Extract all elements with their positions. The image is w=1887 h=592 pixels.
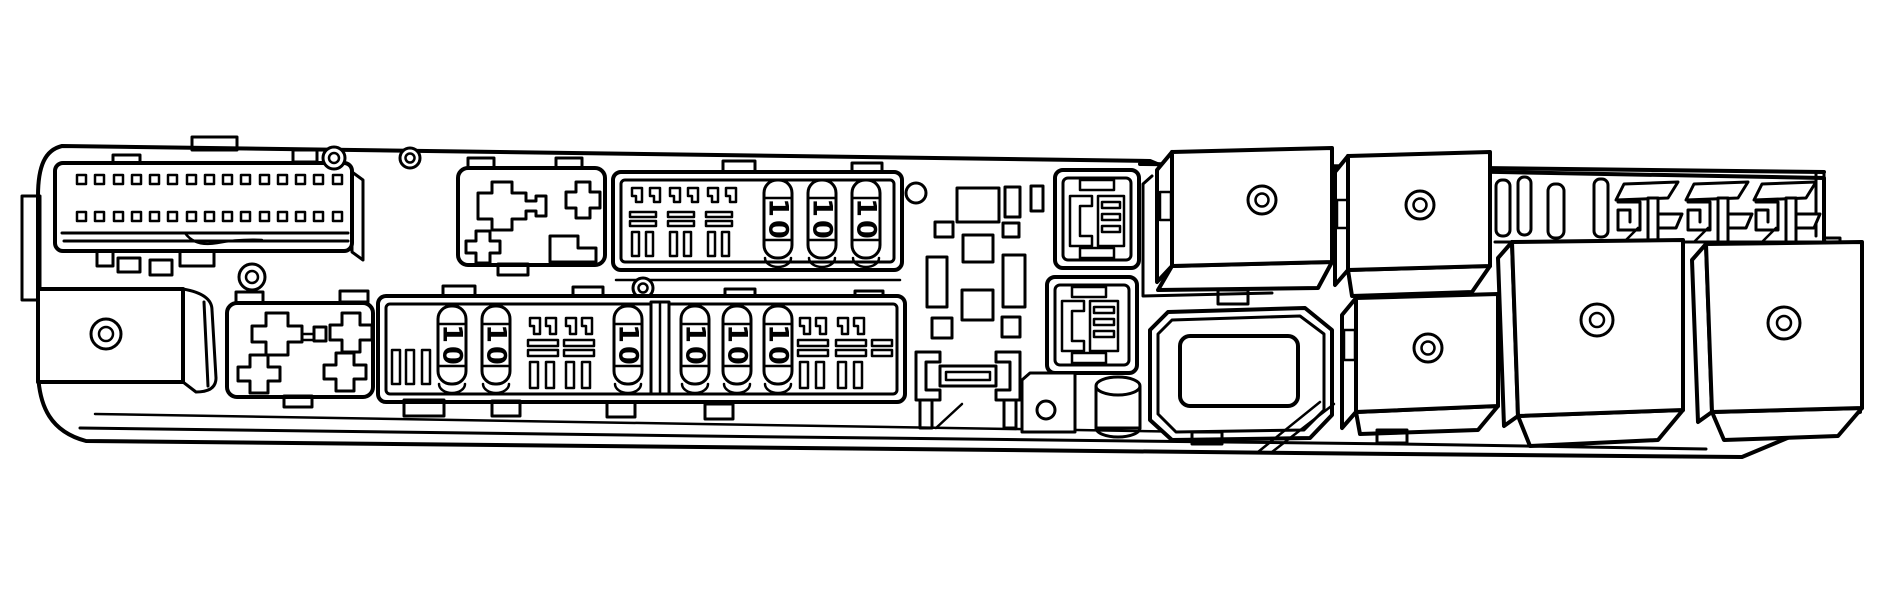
cylinder-post xyxy=(1096,377,1140,437)
fuse-relay-box-illustration: 10 10 10 xyxy=(0,0,1887,592)
connector-cavity xyxy=(1180,336,1298,406)
fuse-label: 10 xyxy=(807,198,838,242)
screw-icon xyxy=(239,264,265,290)
fuse-label: 10 xyxy=(763,324,794,368)
relay-cube-2 xyxy=(1335,152,1490,296)
relay-mark-icon xyxy=(1406,191,1434,219)
rail-post xyxy=(1594,179,1608,237)
fuse-label: 10 xyxy=(851,198,882,242)
socket-lower xyxy=(1047,277,1137,373)
fuse-10: 10 xyxy=(613,306,644,393)
fuse-10: 10 xyxy=(481,306,512,393)
relay-mark-icon xyxy=(1414,334,1442,362)
relay-cube-5 xyxy=(1692,242,1862,440)
screw-icon xyxy=(400,148,420,168)
screw-icon xyxy=(323,147,345,169)
rail-post xyxy=(1496,180,1510,236)
fuse-label: 10 xyxy=(680,324,711,368)
relay-cube-1 xyxy=(1143,148,1332,304)
relay-mark-icon xyxy=(1581,304,1613,336)
fuse-10: 10 xyxy=(722,306,753,393)
fuse-10: 10 xyxy=(851,180,882,267)
relay-socket-top xyxy=(458,158,605,275)
relay-side xyxy=(1342,298,1356,428)
line-art-canvas: 10 10 10 xyxy=(0,0,1887,592)
fuse-label: 10 xyxy=(437,324,468,368)
fuse-10: 10 xyxy=(680,306,711,393)
fuse-label: 10 xyxy=(613,324,644,368)
fuse-bank-bottom: 10 10 10 10 10 10 xyxy=(378,286,905,419)
multi-pin-connector xyxy=(55,155,363,266)
relay-mark-icon xyxy=(1248,186,1276,214)
rounded-connector xyxy=(1150,308,1334,452)
relay-mark-icon xyxy=(1768,307,1800,339)
relay-cube-4 xyxy=(1498,240,1683,446)
fuse-10: 10 xyxy=(437,306,468,393)
fuse-label: 10 xyxy=(722,324,753,368)
fuse-label: 10 xyxy=(481,324,512,368)
fuse-bank-top: 10 10 10 xyxy=(613,161,902,280)
rail-post xyxy=(1548,184,1564,238)
rail-post xyxy=(1518,177,1531,235)
fuse-10: 10 xyxy=(763,306,794,393)
relay-mark-icon xyxy=(91,319,121,349)
relay-socket-bottom xyxy=(227,291,373,407)
relay-cube-3 xyxy=(1342,294,1498,443)
fuse-10: 10 xyxy=(807,180,838,267)
fuse-label: 10 xyxy=(763,198,794,242)
fuse-10: 10 xyxy=(763,180,794,267)
